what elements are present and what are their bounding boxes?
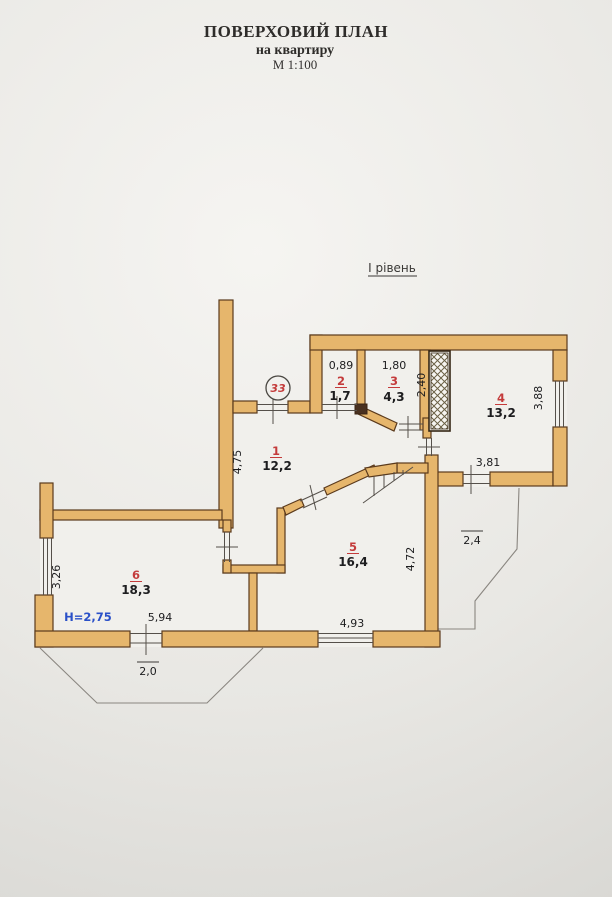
svg-text:16,4: 16,4 xyxy=(338,555,368,569)
dim-room6-width: 5,94 xyxy=(148,611,173,624)
wall-segment xyxy=(223,520,231,532)
dim-room2-width: 0,89 xyxy=(329,359,354,372)
svg-text:5: 5 xyxy=(349,540,357,554)
floor-area xyxy=(40,335,567,647)
wall-segment xyxy=(357,350,365,407)
svg-text:12,2: 12,2 xyxy=(262,459,292,473)
svg-text:2: 2 xyxy=(337,374,345,388)
wall-segment xyxy=(223,565,285,573)
svg-text:2,0: 2,0 xyxy=(139,665,157,678)
wall-segment xyxy=(40,483,53,538)
wall-segment xyxy=(233,401,257,413)
wall-segment xyxy=(553,350,567,381)
svg-text:1,7: 1,7 xyxy=(329,389,350,403)
svg-text:4,3: 4,3 xyxy=(383,390,404,404)
plan-subtitle: на квартиру xyxy=(256,43,334,58)
ceiling-height-label: H=2,75 xyxy=(64,610,112,624)
wall-segment xyxy=(277,508,285,573)
dim-room6-window: 3,26 xyxy=(50,565,63,590)
wall-segment xyxy=(553,427,567,486)
dim-room1-depth: 4,75 xyxy=(231,450,244,475)
dim-room4-window: 3,88 xyxy=(532,386,545,411)
svg-text:3: 3 xyxy=(390,374,398,388)
scanned-floor-plan-page: ПОВЕРХОВИЙ ПЛАН на квартиру М 1:100 І рі… xyxy=(0,0,612,897)
dim-room5-width: 4,93 xyxy=(340,617,365,630)
svg-text:1: 1 xyxy=(272,444,280,458)
svg-text:4: 4 xyxy=(497,391,505,405)
vent-shaft xyxy=(429,351,450,431)
page-title-block: ПОВЕРХОВИЙ ПЛАН на квартиру М 1:100 xyxy=(204,22,388,72)
wall-segment xyxy=(219,300,233,528)
wall-segment xyxy=(425,455,438,647)
dim-balcony-right: 2,4 xyxy=(461,531,483,547)
svg-text:І рівень: І рівень xyxy=(368,261,416,275)
plan-title: ПОВЕРХОВИЙ ПЛАН xyxy=(204,22,388,41)
balcony-outline-right xyxy=(438,488,519,629)
door-post xyxy=(355,404,367,414)
dim-balcony-left: 2,0 xyxy=(137,662,159,678)
dim-room3-width: 1,80 xyxy=(382,359,407,372)
wall-segment xyxy=(373,631,440,647)
floor-plan: ПОВЕРХОВИЙ ПЛАН на квартиру М 1:100 І рі… xyxy=(0,0,612,897)
wall-segment xyxy=(397,463,428,473)
level-label: І рівень xyxy=(368,261,417,276)
svg-text:18,3: 18,3 xyxy=(121,583,151,597)
svg-text:6: 6 xyxy=(132,568,140,582)
apartment-number-badge: 33 xyxy=(266,376,290,400)
dim-room5-depth: 4,72 xyxy=(404,547,417,572)
wall-segment xyxy=(490,472,553,486)
dim-room4-bottom: 3,81 xyxy=(476,456,501,469)
svg-text:2,4: 2,4 xyxy=(463,534,481,547)
plan-scale: М 1:100 xyxy=(273,57,317,72)
dim-room3-depth: 2,40 xyxy=(415,373,428,398)
svg-text:13,2: 13,2 xyxy=(486,406,516,420)
svg-text:33: 33 xyxy=(270,382,286,395)
wall-segment xyxy=(162,631,318,647)
wall-segment xyxy=(310,335,567,350)
wall-segment xyxy=(288,401,310,413)
wall-segment xyxy=(40,510,222,520)
wall-segment xyxy=(249,573,257,631)
wall-segment xyxy=(35,631,130,647)
